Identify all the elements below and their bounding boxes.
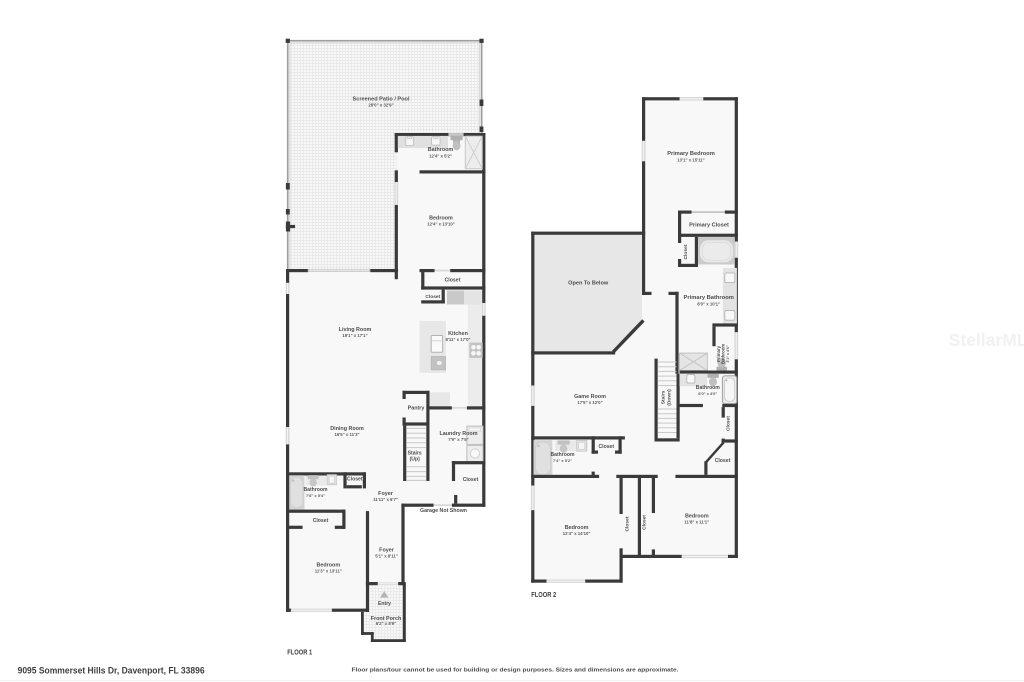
svg-text:Stairs: Stairs [408,451,422,457]
svg-text:9095 Sommerset Hills Dr, Daven: 9095 Sommerset Hills Dr, Davenport, FL 3… [18,665,205,675]
svg-text:Closet: Closet [683,244,689,259]
svg-text:6'2" x 8'9": 6'2" x 8'9" [376,621,396,626]
svg-text:Bathroom: Bathroom [721,344,726,364]
svg-text:Primary Closet: Primary Closet [689,223,729,229]
svg-text:(Up): (Up) [410,457,420,463]
svg-text:Primary Bathroom: Primary Bathroom [684,295,735,301]
svg-text:7'9" x 7'5": 7'9" x 7'5" [448,437,468,442]
svg-text:FLOOR 2: FLOOR 2 [531,590,556,599]
svg-text:Closet: Closet [715,458,731,464]
svg-text:Primary Bedroom: Primary Bedroom [667,151,715,157]
svg-text:Pantry: Pantry [408,406,425,412]
svg-text:Bathroom: Bathroom [428,147,454,153]
svg-text:7'8" x 5'4": 7'8" x 5'4" [306,493,325,498]
svg-text:Closet: Closet [625,516,631,531]
svg-text:12'4" x 5'2": 12'4" x 5'2" [429,154,452,159]
svg-text:17'5" x 12'0": 17'5" x 12'0" [577,400,602,405]
svg-text:Closet: Closet [313,518,329,524]
svg-text:Garage Not Shown: Garage Not Shown [420,508,467,514]
svg-text:Closet: Closet [599,444,615,450]
svg-text:Entry: Entry [378,601,391,607]
svg-text:8'11" x 17'0": 8'11" x 17'0" [446,337,471,342]
svg-text:(Down): (Down) [666,389,672,406]
svg-text:Closet: Closet [642,515,648,530]
svg-text:Closet: Closet [463,477,479,483]
svg-text:11'8" x 11'1": 11'8" x 11'1" [684,519,709,524]
svg-text:Closet: Closet [347,476,363,482]
svg-text:7'4" x 5'2": 7'4" x 5'2" [553,458,572,463]
svg-text:Stairs: Stairs [661,390,667,404]
svg-text:12'4" x 14'10": 12'4" x 14'10" [563,531,591,536]
svg-text:Open To Below: Open To Below [568,281,609,287]
svg-text:11'11" x 6'7": 11'11" x 6'7" [373,497,398,502]
svg-text:5'1" x 8'11": 5'1" x 8'11" [375,554,398,559]
svg-text:Closet: Closet [725,416,731,431]
svg-text:Bedroom: Bedroom [429,216,453,222]
svg-text:19'1" x 17'1": 19'1" x 17'1" [342,333,367,338]
svg-text:11'3" x 13'11": 11'3" x 13'11" [315,568,342,573]
svg-text:Laundry Room: Laundry Room [439,431,477,437]
svg-text:FLOOR 1: FLOOR 1 [287,647,313,656]
svg-text:Floor plans/tour cannot be use: Floor plans/tour cannot be used for buil… [352,668,679,674]
svg-text:12'4" x 13'10": 12'4" x 13'10" [427,222,455,227]
svg-text:Screened Patio / Pool: Screened Patio / Pool [353,96,411,102]
svg-text:Dining Room: Dining Room [330,426,364,432]
svg-text:Foyer: Foyer [379,548,395,554]
svg-text:Bedroom: Bedroom [685,513,709,519]
svg-text:Closet: Closet [425,294,440,300]
svg-text:16'5" x 11'3": 16'5" x 11'3" [335,432,360,437]
svg-text:StellarMLS: StellarMLS [949,330,1024,350]
svg-text:13'1" x 15'11": 13'1" x 15'11" [677,157,704,162]
svg-text:Closet: Closet [445,278,461,284]
svg-text:3'1" x 4'6": 3'1" x 4'6" [726,345,730,362]
svg-text:8'0" x 4'6": 8'0" x 4'6" [698,391,717,396]
svg-text:28'0" x 32'9": 28'0" x 32'9" [368,102,393,107]
svg-text:8'0" x 10'1": 8'0" x 10'1" [697,301,720,306]
svg-text:Bedroom: Bedroom [316,562,340,568]
